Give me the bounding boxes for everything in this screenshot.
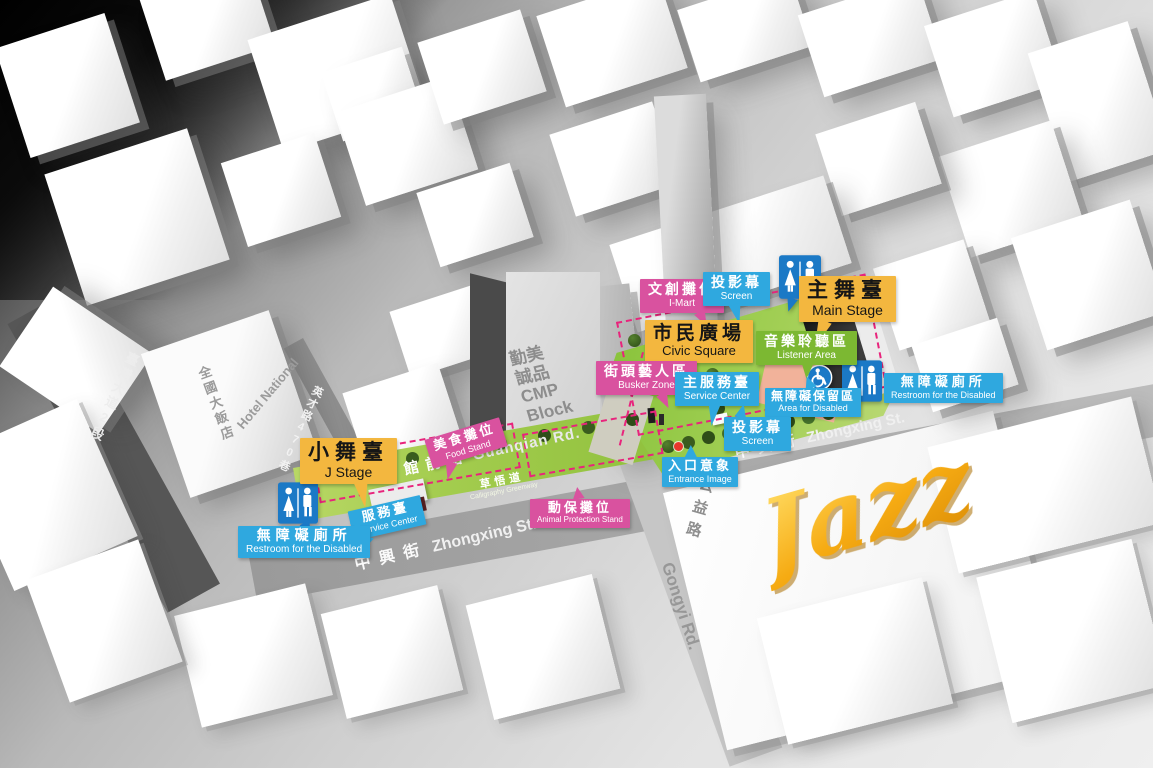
label-main-service-center: 主服務臺 Service Center <box>675 372 759 406</box>
label-main-stage-en: Main Stage <box>807 303 888 319</box>
building-block <box>536 0 687 107</box>
label-j-stage-en: J Stage <box>308 465 389 481</box>
label-main-service-center-zh: 主服務臺 <box>683 375 751 391</box>
label-listener-area: 音樂聆聽區 Listener Area <box>756 331 857 365</box>
label-entrance-image: 入口意象 Entrance Image <box>662 457 738 487</box>
label-restroom-left: 無障礙廁所 Restroom for the Disabled <box>238 526 370 558</box>
label-main-stage: 主舞臺 Main Stage <box>799 276 896 322</box>
label-screen-top-en: Screen <box>711 291 762 302</box>
entrance-point-marker <box>674 442 683 451</box>
label-main-stage-zh: 主舞臺 <box>807 279 888 303</box>
label-screen-top-zh: 投影幕 <box>711 275 762 291</box>
label-animal-protection-stand: 動保攤位 Animal Protection Stand <box>530 499 630 528</box>
label-screen-bottom-zh: 投影幕 <box>732 420 783 436</box>
label-restroom-left-zh: 無障礙廁所 <box>246 528 362 544</box>
building-block <box>141 310 318 498</box>
building-block <box>174 583 333 727</box>
label-animal-protection-stand-en: Animal Protection Stand <box>537 516 623 525</box>
label-civic-square: 市民廣場 Civic Square <box>645 320 753 363</box>
building-block <box>798 0 943 97</box>
label-civic-square-zh: 市民廣場 <box>653 323 745 344</box>
label-area-for-disabled-en: Area for Disabled <box>771 403 855 413</box>
building-block <box>677 0 813 82</box>
building-block <box>321 585 464 719</box>
label-entrance-image-zh: 入口意象 <box>668 459 732 474</box>
label-screen-top: 投影幕 Screen <box>703 272 770 306</box>
hotel-national-building: 全國大飯店 Hotel National <box>162 328 297 480</box>
label-area-for-disabled: 無障礙保留區 Area for Disabled <box>765 388 861 417</box>
label-main-service-center-en: Service Center <box>683 391 751 402</box>
label-restroom-right-en: Restroom for the Disabled <box>891 390 996 400</box>
label-screen-bottom-en: Screen <box>732 436 783 447</box>
label-screen-bottom: 投影幕 Screen <box>724 417 791 451</box>
building-block <box>815 102 941 216</box>
label-j-stage: 小舞臺 J Stage <box>300 438 397 484</box>
label-civic-square-en: Civic Square <box>653 344 745 359</box>
label-restroom-right: 無障礙廁所 Restroom for the Disabled <box>884 373 1003 403</box>
restroom-icon <box>278 482 318 529</box>
building-block <box>466 574 621 720</box>
label-entrance-image-en: Entrance Image <box>668 474 732 484</box>
label-listener-area-en: Listener Area <box>764 350 849 361</box>
site-map-canvas: 勤美 誠品 CMP Block 全國大飯店 Hotel National 臺灣大… <box>0 0 1153 768</box>
label-restroom-right-zh: 無障礙廁所 <box>891 375 996 390</box>
label-area-for-disabled-zh: 無障礙保留區 <box>771 390 855 403</box>
label-listener-area-zh: 音樂聆聽區 <box>764 334 849 350</box>
label-animal-protection-stand-zh: 動保攤位 <box>537 501 623 516</box>
label-j-stage-zh: 小舞臺 <box>308 441 389 465</box>
label-restroom-left-en: Restroom for the Disabled <box>246 544 362 555</box>
